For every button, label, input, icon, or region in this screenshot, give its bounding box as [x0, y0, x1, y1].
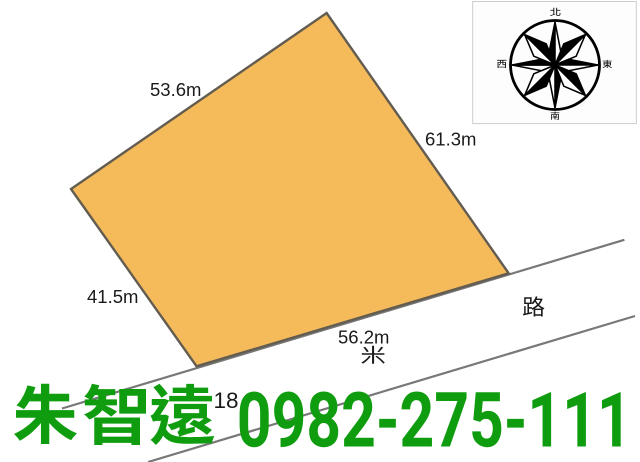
svg-text:18: 18 [214, 388, 239, 413]
svg-text:61.3m: 61.3m [425, 129, 476, 150]
svg-text:53.6m: 53.6m [150, 79, 201, 100]
svg-text:56.2m: 56.2m [338, 326, 389, 347]
svg-text:41.5m: 41.5m [87, 286, 138, 307]
